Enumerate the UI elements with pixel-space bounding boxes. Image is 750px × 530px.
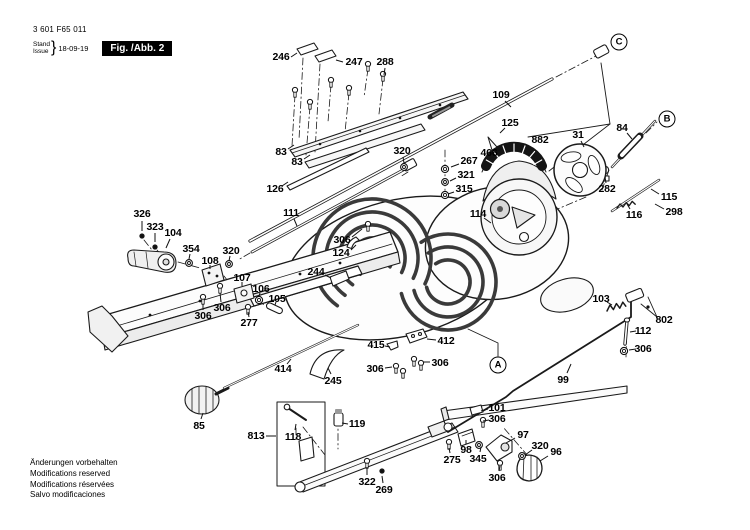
stand-label: Stand	[33, 41, 50, 48]
title-block: 3 601 F65 011 Stand Issue } 18-09-19 Fig…	[33, 25, 172, 57]
notice-en: Modifications reserved	[30, 469, 118, 480]
issue-label: Issue	[33, 48, 50, 55]
document-number: 3 601 F65 011	[33, 25, 172, 34]
figure-badge: Fig. /Abb. 2	[102, 41, 172, 56]
notice-fr: Modifications réservées	[30, 480, 118, 491]
issue-date: 18-09-19	[58, 44, 88, 53]
leader-lines	[0, 0, 750, 530]
legal-notices: Änderungen vorbehalten Modifications res…	[30, 458, 118, 501]
notice-de: Änderungen vorbehalten	[30, 458, 118, 469]
exploded-parts-diagram: 2462472881098383126320267321315114111326…	[0, 0, 750, 530]
notice-es: Salvo modificaciones	[30, 490, 118, 501]
stand-issue-labels: Stand Issue	[33, 41, 50, 55]
brace-glyph: }	[51, 39, 56, 57]
